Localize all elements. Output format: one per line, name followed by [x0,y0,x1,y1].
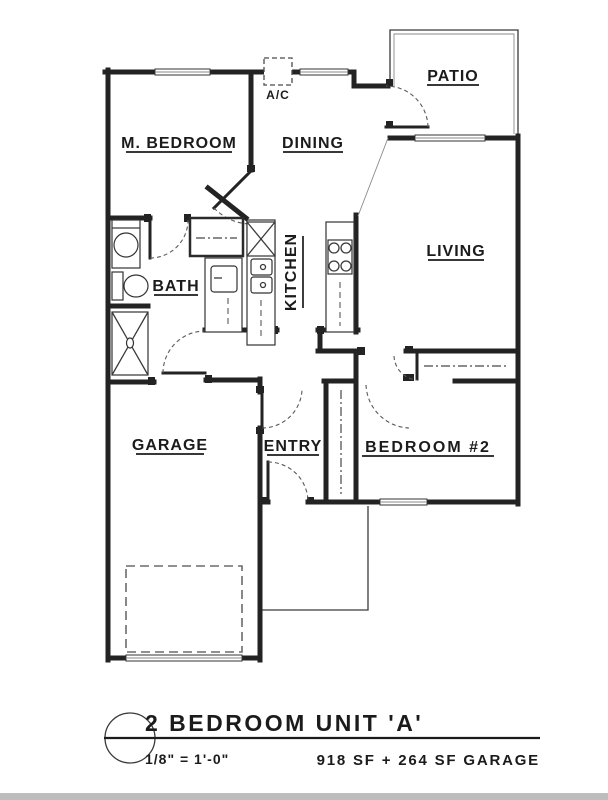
exterior-walls [105,70,518,660]
title-block: 2 BEDROOM UNIT 'A' 1/8" = 1'-0" 918 SF +… [104,710,540,769]
plan-title: 2 BEDROOM UNIT 'A' [145,710,423,736]
room-labels: M. BEDROOM DINING PATIO LIVING KITCHEN B… [121,68,494,456]
room-label-dining: DINING [282,135,344,152]
front-door [268,462,308,502]
bedroom2-window [380,499,427,505]
kitchen-fixtures [247,138,388,345]
floor-plan-page: M. BEDROOM DINING PATIO LIVING KITCHEN B… [0,0,608,800]
bedroom-window [155,69,210,75]
plan-area: 918 SF + 264 SF GARAGE [317,752,540,769]
plan-scale: 1/8" = 1'-0" [145,751,229,767]
toilet [112,272,148,300]
floor-plan-drawing: M. BEDROOM DINING PATIO LIVING KITCHEN B… [0,0,608,800]
shower [112,312,148,375]
room-label-living: LIVING [426,243,485,260]
garage-door [126,566,242,652]
windows [126,69,485,661]
room-label-patio: PATIO [427,68,479,85]
room-label-bath: BATH [152,278,199,295]
bath-fixtures [112,220,242,375]
laundry-sink [112,220,140,268]
living-window [415,135,485,141]
linen-closet [190,218,243,256]
ceiling-break-line [358,138,388,216]
kitchen-west-counter [247,220,275,345]
kitchen-east-counter [326,222,354,332]
room-label-entry: ENTRY [264,438,323,455]
bath-door [150,220,188,258]
patio-door [386,86,428,127]
vanity [205,258,242,332]
bedroom2-door [366,385,409,428]
room-label-kitchen: KITCHEN [283,233,300,311]
porch-outline [260,506,368,610]
ac-label: A/C [266,88,290,102]
dining-window [300,69,348,75]
stove [328,240,352,274]
garage-entry-door [262,390,302,428]
garage-hall-door [163,331,205,373]
garage-door-opening [126,655,242,661]
scan-edge [0,793,608,800]
room-label-garage: GARAGE [132,437,208,454]
room-label-bedroom2: BEDROOM #2 [365,439,491,456]
ac-unit [264,58,292,85]
room-label-m-bedroom: M. BEDROOM [121,135,237,152]
